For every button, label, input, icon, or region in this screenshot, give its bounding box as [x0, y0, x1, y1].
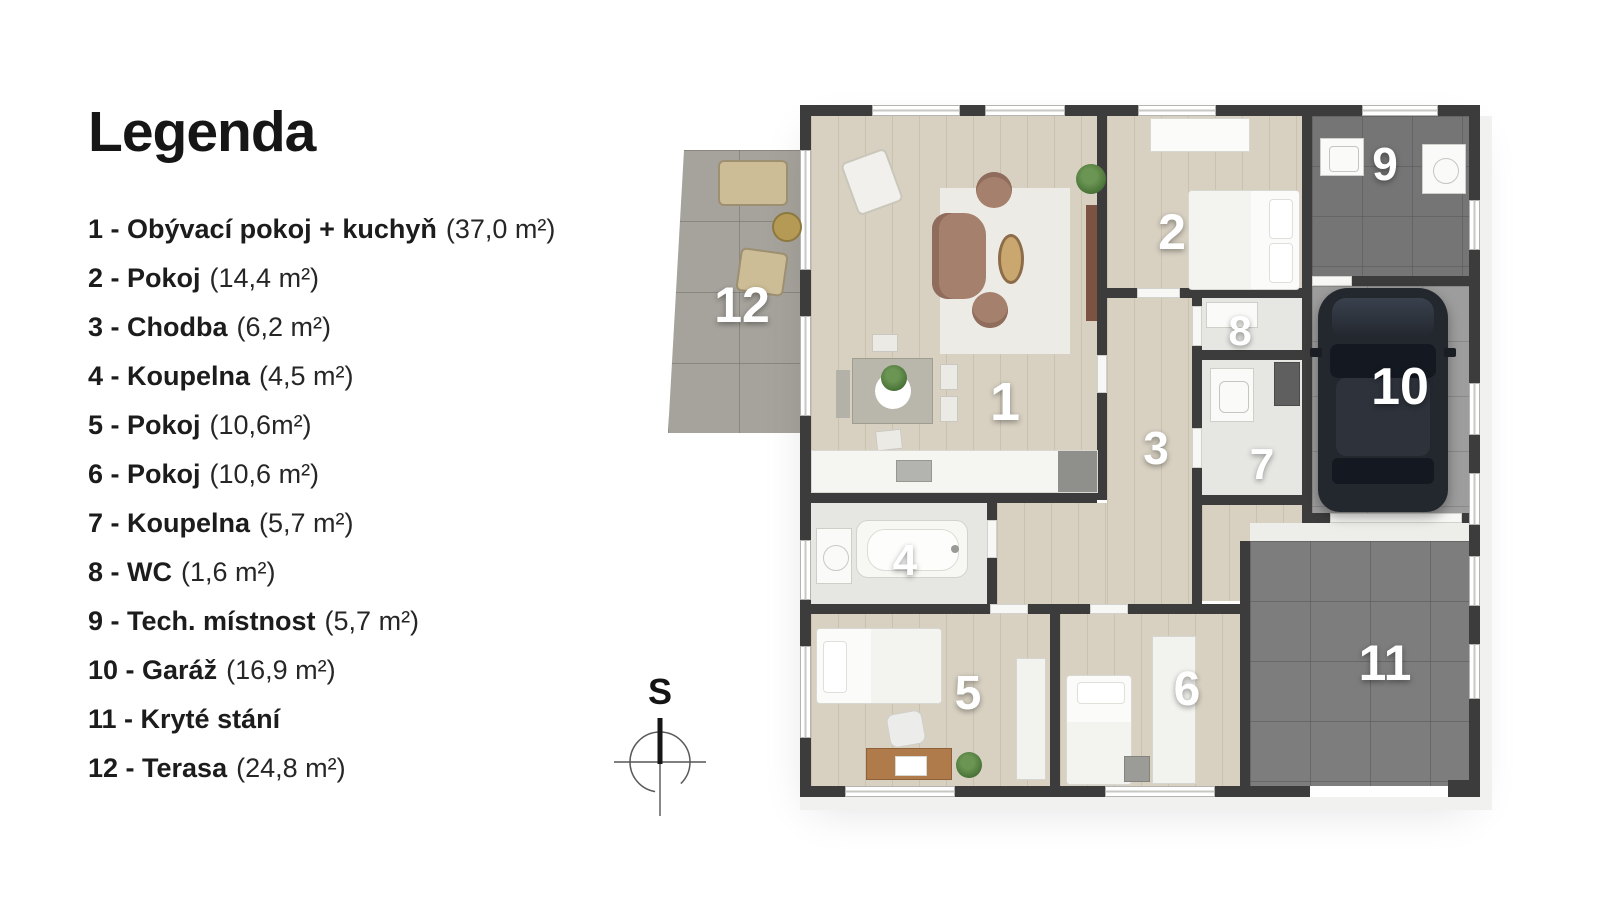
legend-list: 1 - Obývací pokoj + kuchyň(37,0 m²) 2 - … — [88, 205, 648, 793]
coffee-table — [998, 234, 1024, 284]
window-living-2 — [985, 105, 1065, 116]
door-bath7 — [1192, 428, 1202, 468]
room-number-3: 3 — [1143, 425, 1169, 471]
legend-item-10: 10 - Garáž(16,9 m²) — [88, 646, 648, 695]
window-tech — [1362, 105, 1438, 116]
floor-plan: 1 2 3 4 5 6 7 8 9 10 11 12 — [650, 88, 1560, 838]
room-number-5: 5 — [955, 670, 982, 718]
legend-title: Legenda — [88, 104, 648, 161]
door-bed5 — [990, 604, 1028, 614]
room-number-11: 11 — [1359, 638, 1412, 688]
room-number-7: 7 — [1250, 443, 1274, 487]
room-number-6: 6 — [1174, 666, 1201, 714]
window-bed5-south — [845, 786, 955, 797]
legend-item-11: 11 - Kryté stání — [88, 695, 648, 744]
car-hood — [1332, 298, 1434, 338]
legend-item-area: (5,7 m²) — [325, 606, 420, 637]
window-carport-1 — [1469, 556, 1480, 606]
room-number-1: 1 — [990, 375, 1020, 429]
legend-item-area: (4,5 m²) — [259, 361, 354, 392]
room-number-9: 9 — [1372, 141, 1398, 187]
dining-chair-north — [872, 334, 898, 352]
duvet — [1067, 722, 1131, 784]
legend-item-area: (6,2 m²) — [237, 312, 332, 343]
terrace-slider-door — [800, 150, 811, 270]
room-number-10: 10 — [1371, 361, 1429, 413]
floorplan-page: { "legend": { "title": "Legenda", "items… — [0, 0, 1600, 900]
legend-item-label: 9 - Tech. místnost — [88, 606, 316, 637]
tv-sideboard — [1086, 205, 1097, 321]
desk-chair — [885, 709, 926, 749]
outdoor-sofa — [718, 160, 788, 206]
carport-pillar — [1448, 780, 1480, 797]
wall-carport-west — [1240, 541, 1250, 786]
desk — [866, 748, 952, 780]
door-living-hall — [1097, 355, 1107, 393]
kitchen-fridge — [1058, 451, 1097, 492]
window-bed6-south — [1105, 786, 1215, 797]
wall-garage-west — [1302, 116, 1312, 513]
washing-machine — [816, 528, 852, 584]
door-wc — [1192, 306, 1202, 346]
legend-item-3: 3 - Chodba(6,2 m²) — [88, 303, 648, 352]
legend-item-label: 1 - Obývací pokoj + kuchyň — [88, 214, 437, 245]
bathtub-faucet — [951, 545, 959, 553]
wardrobe-5 — [1016, 658, 1046, 780]
window-living-1 — [872, 105, 960, 116]
car-mirror-left — [1310, 348, 1322, 357]
armchair-1 — [976, 172, 1012, 208]
sofa — [932, 213, 986, 299]
north-arrow-icon — [612, 710, 708, 820]
dining-chair-east-2 — [940, 396, 958, 422]
legend-item-label: 5 - Pokoj — [88, 410, 201, 441]
armchair-2 — [972, 292, 1008, 328]
walkway — [1250, 523, 1469, 541]
duvet — [1189, 191, 1251, 289]
window-bed5-west — [800, 646, 811, 738]
wall-bed5-bed6 — [1050, 604, 1060, 786]
utility-sink — [1320, 138, 1364, 176]
dining-plant — [881, 365, 907, 391]
terrace-door-2 — [800, 316, 811, 416]
washbasin-7 — [1210, 368, 1254, 422]
legend-item-4: 4 - Koupelna(4,5 m²) — [88, 352, 648, 401]
washer-door — [823, 545, 849, 571]
compass-north-label: S — [612, 674, 708, 710]
room-number-8: 8 — [1228, 310, 1251, 352]
wall-bed6-north — [1060, 604, 1240, 614]
window-bench-bed2 — [1150, 118, 1250, 152]
car-mirror-right — [1444, 348, 1456, 357]
sink-bowl — [1329, 146, 1359, 172]
wall-kitchen-bath4 — [811, 493, 1097, 503]
legend-item-area: (1,6 m²) — [181, 557, 276, 588]
dining-chair-south — [875, 429, 903, 452]
plant-bed5 — [956, 752, 982, 778]
single-bed-5 — [816, 628, 942, 704]
room-number-4: 4 — [893, 539, 917, 583]
garage-door — [1330, 513, 1462, 523]
legend-item-label: 8 - WC — [88, 557, 172, 588]
double-bed-2 — [1188, 190, 1300, 290]
boiler — [1422, 144, 1466, 194]
window-garage-1 — [1469, 383, 1480, 435]
kitchen-sink — [896, 460, 932, 482]
legend-item-6: 6 - Pokoj(10,6 m²) — [88, 450, 648, 499]
legend-item-area: (10,6m²) — [210, 410, 312, 441]
pillow — [823, 641, 847, 693]
pillow — [1269, 243, 1293, 283]
legend-item-label: 11 - Kryté stání — [88, 704, 280, 735]
legend-item-area: (14,4 m²) — [210, 263, 320, 294]
nightstand-6 — [1124, 756, 1150, 782]
boiler-door — [1433, 158, 1459, 184]
wall-bath7-south — [1202, 495, 1302, 505]
window-carport-2 — [1469, 644, 1480, 699]
shower-fixture — [1274, 362, 1300, 406]
legend-item-area: (5,7 m²) — [259, 508, 354, 539]
legend-item-label: 10 - Garáž — [88, 655, 217, 686]
legend-item-area: (24,8 m²) — [236, 753, 346, 784]
legend-item-label: 4 - Koupelna — [88, 361, 250, 392]
pillow — [1269, 199, 1293, 239]
dining-bench — [836, 370, 850, 418]
legend-item-label: 6 - Pokoj — [88, 459, 201, 490]
room-number-2: 2 — [1158, 207, 1186, 257]
legend-item-label: 3 - Chodba — [88, 312, 228, 343]
legend-item-label: 12 - Terasa — [88, 753, 227, 784]
dining-chair-east-1 — [940, 364, 958, 390]
legend-item-5: 5 - Pokoj(10,6m²) — [88, 401, 648, 450]
legend-item-9: 9 - Tech. místnost(5,7 m²) — [88, 597, 648, 646]
door-tech-garage — [1312, 276, 1352, 286]
dining-table — [852, 358, 933, 424]
door-bath4 — [987, 520, 997, 558]
outdoor-table — [772, 212, 802, 242]
legend: Legenda 1 - Obývací pokoj + kuchyň(37,0 … — [88, 104, 648, 793]
compass: S — [612, 674, 708, 825]
basin-bowl — [1219, 381, 1249, 413]
apron-right — [1480, 116, 1492, 797]
car-rear-window — [1332, 458, 1434, 484]
laptop — [895, 756, 927, 776]
legend-item-area: (16,9 m²) — [226, 655, 336, 686]
legend-item-label: 2 - Pokoj — [88, 263, 201, 294]
room-number-12: 12 — [714, 280, 770, 330]
kitchen-counter — [811, 450, 1098, 493]
legend-item-2: 2 - Pokoj(14,4 m²) — [88, 254, 648, 303]
legend-item-area: (10,6 m²) — [210, 459, 320, 490]
legend-item-8: 8 - WC(1,6 m²) — [88, 548, 648, 597]
apron-bottom — [800, 797, 1492, 810]
window-bed2 — [1138, 105, 1216, 116]
door-bed6 — [1090, 604, 1128, 614]
door-bed2 — [1137, 288, 1180, 298]
legend-item-area: (37,0 m²) — [446, 214, 556, 245]
window-garage-2 — [1469, 473, 1480, 525]
hall-floor-west — [997, 503, 1107, 604]
window-bath4 — [800, 540, 811, 600]
pillow — [1077, 682, 1125, 704]
duvet — [871, 629, 941, 703]
legend-item-12: 12 - Terasa(24,8 m²) — [88, 744, 648, 793]
window-tech-east — [1469, 200, 1480, 250]
double-bed-6 — [1066, 675, 1132, 785]
legend-item-label: 7 - Koupelna — [88, 508, 250, 539]
plant-living — [1076, 164, 1106, 194]
opening-carport-south — [1310, 786, 1448, 797]
legend-item-7: 7 - Koupelna(5,7 m²) — [88, 499, 648, 548]
legend-item-1: 1 - Obývací pokoj + kuchyň(37,0 m²) — [88, 205, 648, 254]
wall-wc-bath7 — [1202, 350, 1302, 360]
